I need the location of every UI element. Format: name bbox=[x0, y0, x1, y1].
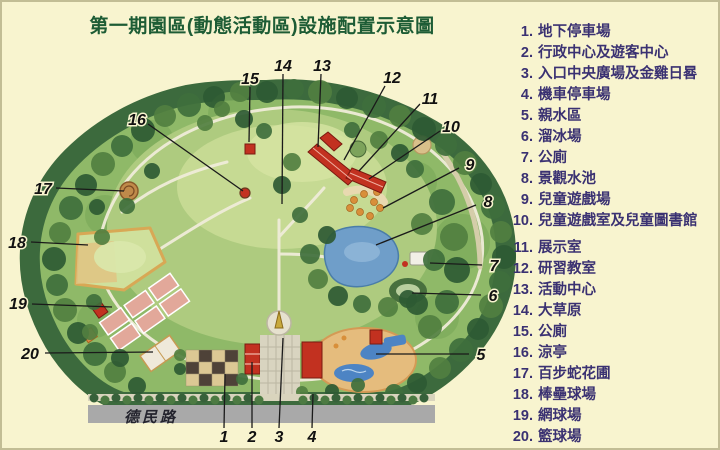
legend-item: 1. 地下停車場 bbox=[508, 22, 714, 43]
legend-item-number: 12. bbox=[508, 259, 533, 280]
map-callout-18: 18 bbox=[8, 235, 26, 252]
legend-item: 18. 棒壘球場 bbox=[508, 385, 714, 406]
legend-item-number: 13. bbox=[508, 280, 533, 301]
legend-item-number: 6. bbox=[508, 127, 533, 148]
legend-item: 16. 涼亭 bbox=[508, 343, 714, 364]
legend-item-label: 行政中心及遊客中心 bbox=[538, 43, 669, 64]
legend-item-label: 地下停車場 bbox=[538, 22, 611, 43]
legend-item-number: 3. bbox=[508, 64, 533, 85]
legend-item: 20. 籃球場 bbox=[508, 427, 714, 448]
map-callout-10: 10 bbox=[442, 119, 460, 136]
legend-item-number: 4. bbox=[508, 85, 533, 106]
legend-item: 10. 兒童遊戲室及兒童圖書館 bbox=[508, 211, 714, 232]
legend-item-number: 19. bbox=[508, 406, 533, 427]
legend: 1. 地下停車場 2. 行政中心及遊客中心 3. 入口中央廣場及金雞日晷 4. … bbox=[508, 22, 714, 448]
legend-item-label: 百步蛇花圃 bbox=[538, 364, 611, 385]
legend-item-label: 公廁 bbox=[538, 322, 567, 343]
legend-item-number: 5. bbox=[508, 106, 533, 127]
legend-item: 14. 大草原 bbox=[508, 301, 714, 322]
road-name-label: 德民路 bbox=[124, 406, 178, 427]
map-callout-9: 9 bbox=[466, 157, 475, 174]
map-callout-14: 14 bbox=[274, 58, 292, 75]
map-callout-3: 3 bbox=[275, 429, 284, 446]
map-callout-12: 12 bbox=[383, 70, 401, 87]
legend-item: 13. 活動中心 bbox=[508, 280, 714, 301]
legend-item-label: 機車停車場 bbox=[538, 85, 611, 106]
legend-item-number: 17. bbox=[508, 364, 533, 385]
legend-item-label: 景觀水池 bbox=[538, 169, 596, 190]
legend-item-number: 1. bbox=[508, 22, 533, 43]
legend-item: 11. 展示室 bbox=[508, 238, 714, 259]
legend-item-number: 10. bbox=[508, 211, 533, 232]
legend-item-label: 親水區 bbox=[538, 106, 582, 127]
legend-item: 2. 行政中心及遊客中心 bbox=[508, 43, 714, 64]
legend-item-number: 9. bbox=[508, 190, 533, 211]
legend-item-number: 11. bbox=[508, 238, 533, 259]
map-callout-1: 1 bbox=[220, 429, 229, 446]
map-callout-8: 8 bbox=[484, 194, 493, 211]
legend-item-label: 溜冰場 bbox=[538, 127, 582, 148]
legend-item-number: 7. bbox=[508, 148, 533, 169]
legend-item-label: 兒童遊戲場 bbox=[538, 190, 611, 211]
toilet-hut bbox=[245, 144, 255, 154]
legend-item: 19. 網球場 bbox=[508, 406, 714, 427]
legend-item-number: 15. bbox=[508, 322, 533, 343]
legend-item-number: 16. bbox=[508, 343, 533, 364]
map-callout-11: 11 bbox=[422, 91, 439, 108]
map-callout-15: 15 bbox=[241, 71, 260, 88]
legend-item: 7. 公廁 bbox=[508, 148, 714, 169]
map-callout-16: 16 bbox=[128, 112, 146, 129]
map-callout-17: 17 bbox=[34, 181, 53, 198]
legend-item: 6. 溜冰場 bbox=[508, 127, 714, 148]
legend-item-label: 棒壘球場 bbox=[538, 385, 596, 406]
map-callout-4: 4 bbox=[307, 429, 317, 446]
underground-parking-entrance bbox=[186, 350, 238, 386]
map-callout-19: 19 bbox=[9, 296, 27, 313]
map-callout-5: 5 bbox=[477, 347, 487, 364]
legend-item-number: 8. bbox=[508, 169, 533, 190]
legend-item-number: 2. bbox=[508, 43, 533, 64]
legend-item: 5. 親水區 bbox=[508, 106, 714, 127]
map-callout-20: 20 bbox=[20, 346, 39, 363]
page-title: 第一期園區(動態活動區)設施配置示意圖 bbox=[57, 11, 467, 38]
legend-item-label: 活動中心 bbox=[538, 280, 596, 301]
legend-item: 8. 景觀水池 bbox=[508, 169, 714, 190]
legend-item-number: 20. bbox=[508, 427, 533, 448]
map-callout-6: 6 bbox=[489, 288, 498, 305]
legend-item: 12. 研習教室 bbox=[508, 259, 714, 280]
map-callout-2: 2 bbox=[247, 429, 257, 446]
park-map-page: 1234567891011121314151617181920 第一期園區(動態… bbox=[0, 0, 720, 450]
legend-item-label: 展示室 bbox=[538, 238, 582, 259]
legend-item-label: 籃球場 bbox=[538, 427, 582, 448]
map-callout-13: 13 bbox=[313, 58, 331, 75]
map-callout-7: 7 bbox=[490, 258, 500, 275]
legend-item-label: 研習教室 bbox=[538, 259, 596, 280]
legend-item-label: 入口中央廣場及金雞日晷 bbox=[538, 64, 698, 85]
legend-item-label: 大草原 bbox=[538, 301, 582, 322]
legend-item: 15. 公廁 bbox=[508, 322, 714, 343]
legend-item-label: 公廁 bbox=[538, 148, 567, 169]
legend-item: 3. 入口中央廣場及金雞日晷 bbox=[508, 64, 714, 85]
legend-item-label: 網球場 bbox=[538, 406, 582, 427]
legend-item-number: 18. bbox=[508, 385, 533, 406]
legend-item: 9. 兒童遊戲場 bbox=[508, 190, 714, 211]
legend-item: 17. 百步蛇花圃 bbox=[508, 364, 714, 385]
legend-item: 4. 機車停車場 bbox=[508, 85, 714, 106]
legend-item-label: 兒童遊戲室及兒童圖書館 bbox=[538, 211, 698, 232]
legend-item-number: 14. bbox=[508, 301, 533, 322]
legend-item-label: 涼亭 bbox=[538, 343, 567, 364]
